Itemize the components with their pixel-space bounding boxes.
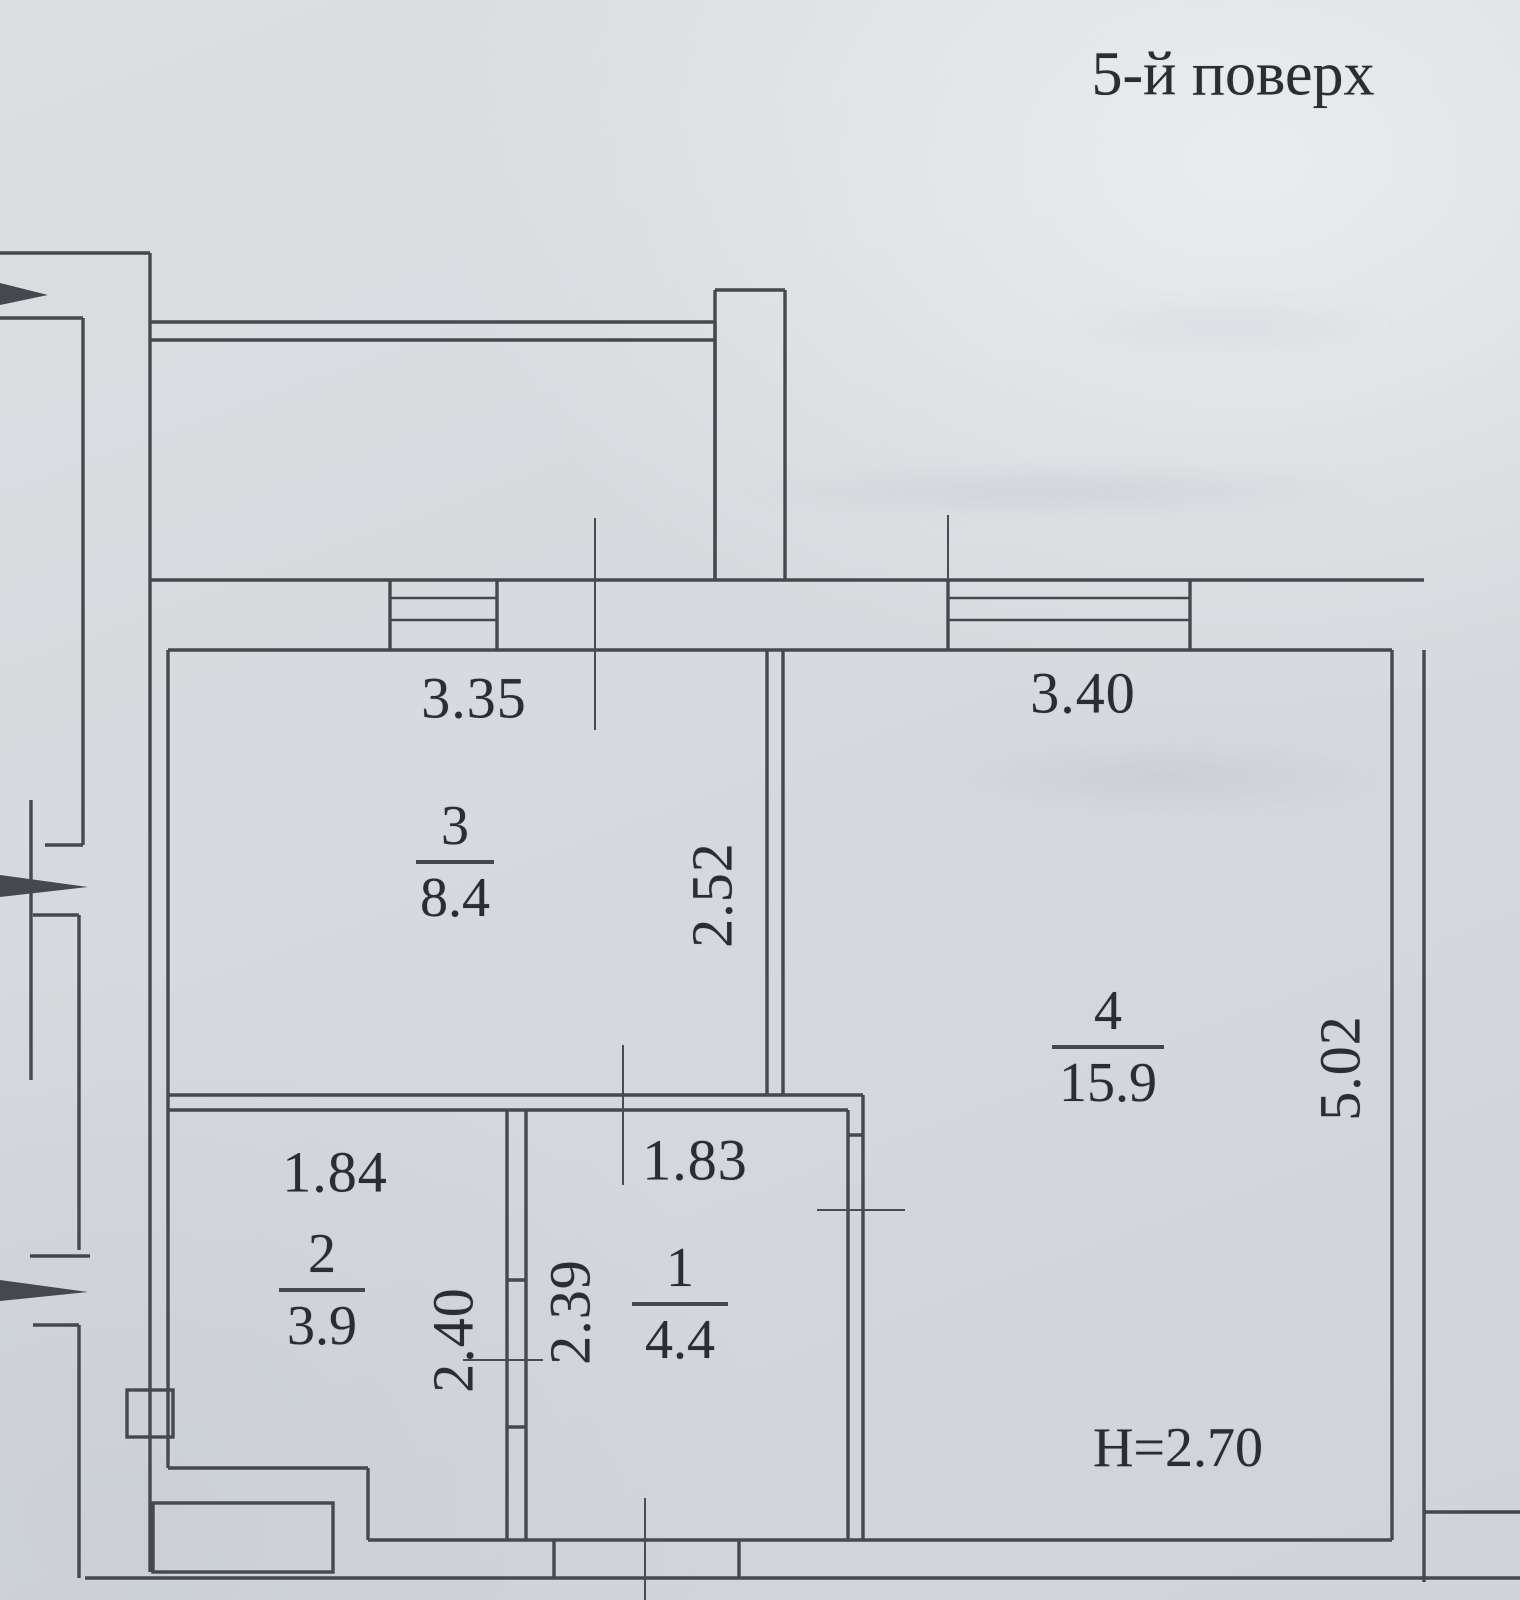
dim-room3-depth: 2.52 <box>679 842 746 948</box>
window-room4 <box>948 580 1190 650</box>
dim-room4-depth: 5.02 <box>1307 1015 1374 1121</box>
room2-number: 2 <box>279 1226 365 1283</box>
room3-label: 3 8.4 <box>416 798 494 927</box>
floor-title: 5-й поверх <box>1092 40 1375 111</box>
ceiling-height-label: H=2.70 <box>1093 1416 1263 1480</box>
room1-area: 4.4 <box>632 1312 728 1369</box>
room1-number: 1 <box>632 1240 728 1297</box>
room3-fraction-bar <box>416 860 494 863</box>
room4-area: 15.9 <box>1052 1055 1164 1112</box>
dim-room1-width: 1.83 <box>642 1127 748 1194</box>
room2-area: 3.9 <box>279 1298 365 1355</box>
partition-room1-room4 <box>848 1095 863 1540</box>
room3-area: 8.4 <box>416 870 494 927</box>
window-room3 <box>390 580 497 650</box>
dim-room4-width: 3.40 <box>1030 660 1136 727</box>
large-duct-box <box>153 1503 333 1572</box>
dim-room2-depth: 2.40 <box>420 1287 487 1393</box>
dim-room2-width: 1.84 <box>282 1139 388 1206</box>
top-wall <box>150 580 1424 650</box>
service-boxes <box>127 1390 333 1572</box>
pillar <box>715 290 785 580</box>
room4-number: 4 <box>1052 983 1164 1040</box>
floor-plan-document: 5-й поверх 3.35 3.40 1.84 1.83 2.52 5.02… <box>0 0 1520 1600</box>
room3-bottom-wall <box>168 1095 863 1110</box>
left-wall <box>150 580 168 1572</box>
balcony-outline <box>150 322 715 580</box>
wall-break-dart <box>0 283 48 305</box>
room2-label: 2 3.9 <box>279 1226 365 1355</box>
right-wall <box>1392 650 1520 1582</box>
wall-break-dart <box>0 875 88 897</box>
dim-room3-width: 3.35 <box>421 665 527 732</box>
room3-number: 3 <box>416 798 494 855</box>
room2-fraction-bar <box>279 1288 365 1291</box>
dim-room1-depth: 2.39 <box>537 1259 604 1365</box>
partition-room1-room2 <box>507 1110 526 1540</box>
room1-label: 1 4.4 <box>632 1240 728 1369</box>
bottom-wall <box>85 1468 1520 1578</box>
left-exterior-wall <box>0 253 150 1578</box>
wall-break-dart <box>0 1280 88 1301</box>
dimension-ticks <box>463 515 948 1600</box>
room1-fraction-bar <box>632 1302 728 1305</box>
partition-room3-room4 <box>767 650 783 1095</box>
room4-label: 4 15.9 <box>1052 983 1164 1112</box>
floor-plan-drawing <box>0 0 1520 1600</box>
room4-fraction-bar <box>1052 1045 1164 1048</box>
